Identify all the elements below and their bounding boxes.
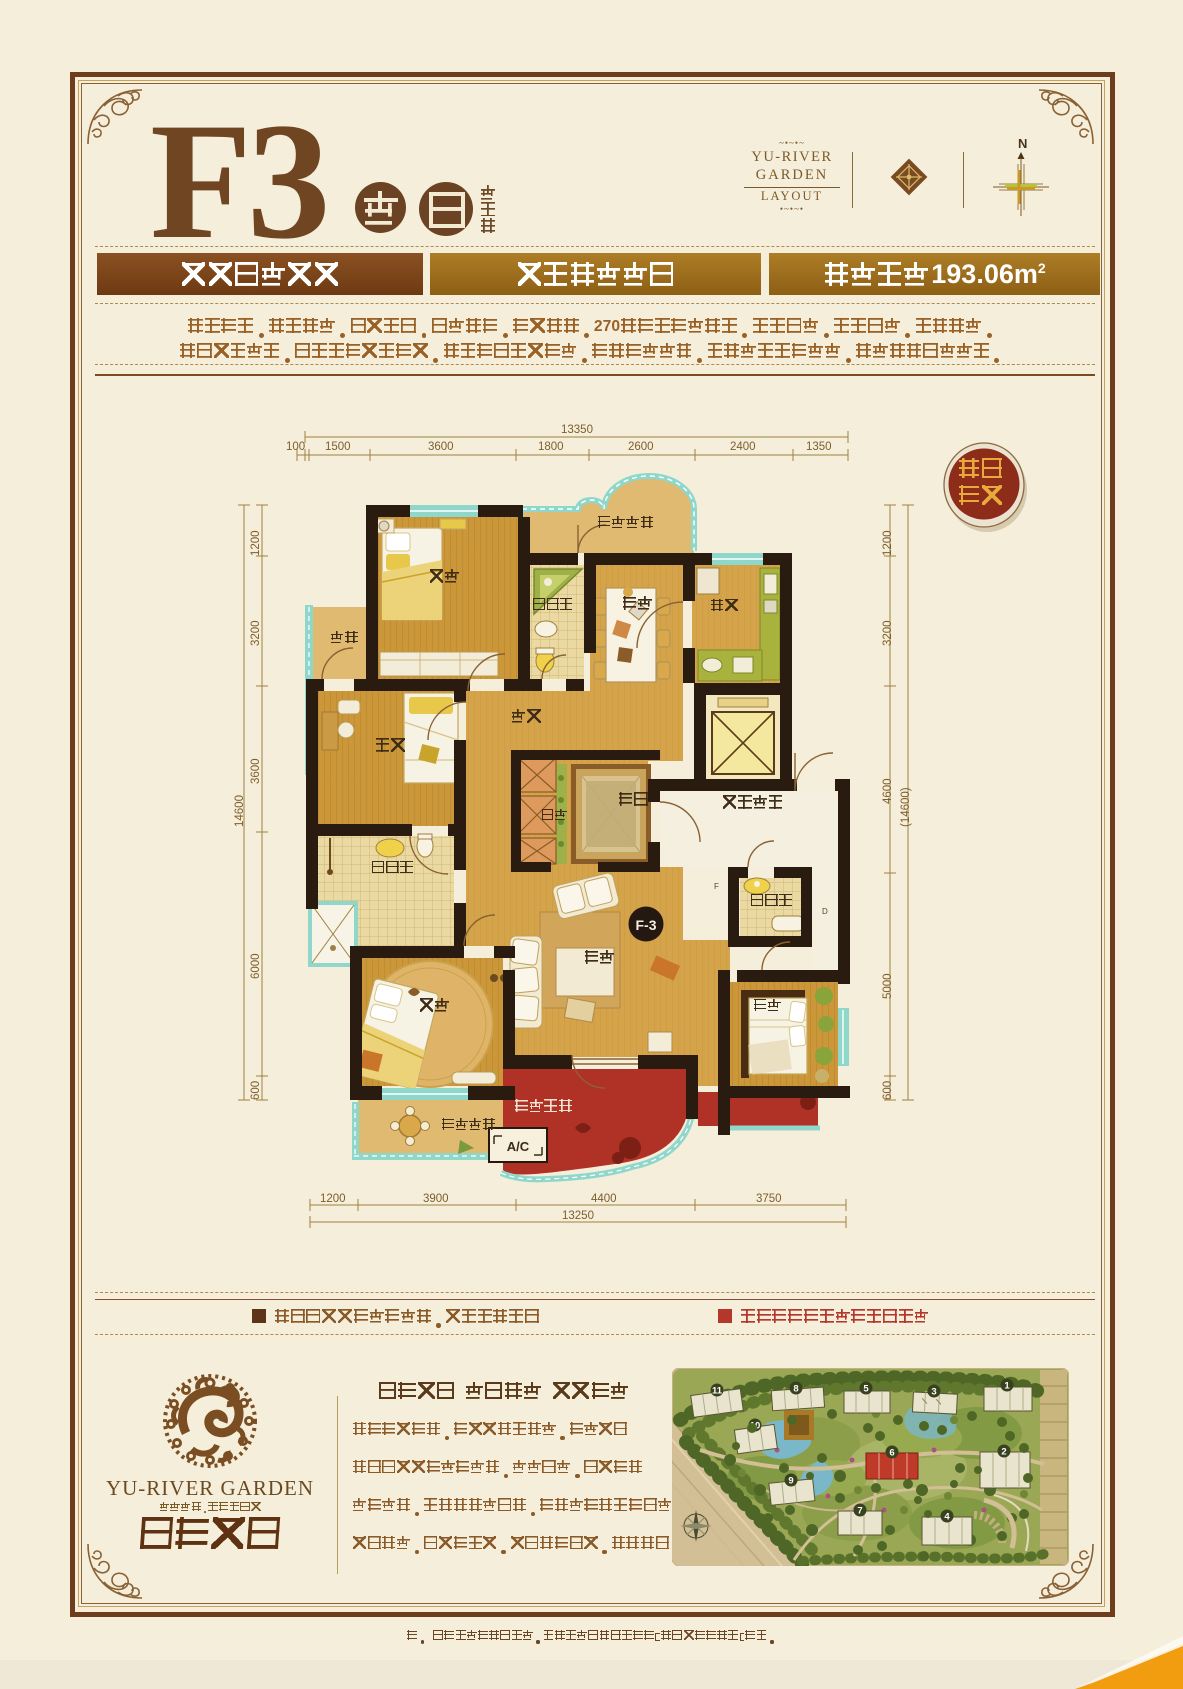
svg-text:F: F [714, 882, 719, 891]
svg-text:4: 4 [944, 1512, 950, 1523]
svg-text:1: 1 [1004, 1381, 1010, 1392]
svg-text:3: 3 [931, 1387, 936, 1398]
svg-text:2: 2 [1001, 1447, 1006, 1458]
svg-text:F-3: F-3 [636, 917, 657, 933]
svg-text:A/C: A/C [507, 1139, 530, 1154]
svg-text:5: 5 [863, 1384, 869, 1395]
svg-text:D: D [822, 907, 828, 916]
svg-text:8: 8 [793, 1384, 798, 1395]
svg-text:11: 11 [712, 1386, 723, 1397]
svg-text:7: 7 [857, 1506, 862, 1517]
svg-text:9: 9 [788, 1476, 793, 1487]
svg-text:6: 6 [889, 1448, 894, 1459]
